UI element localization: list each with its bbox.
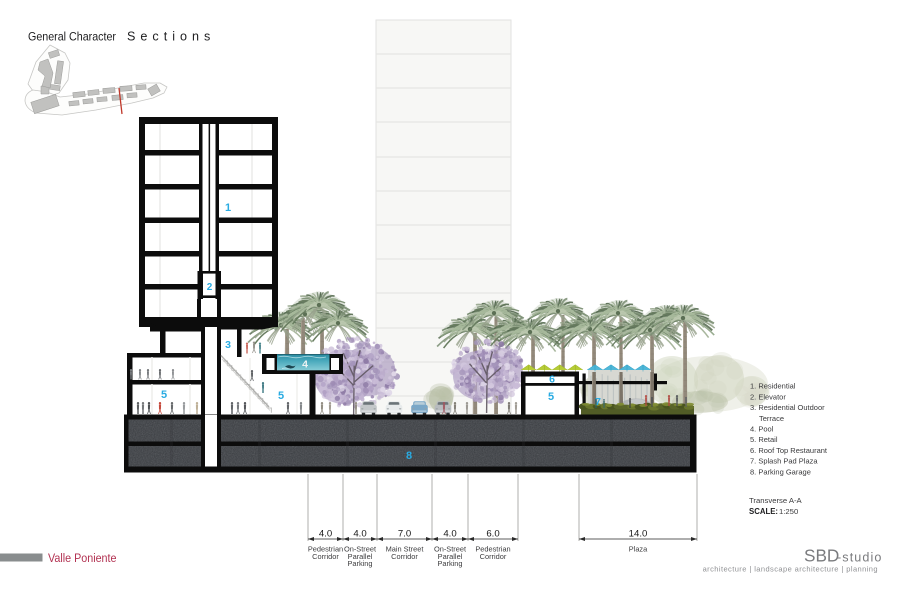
svg-text:General Character: General Character — [28, 30, 116, 44]
svg-text:Parking: Parking — [347, 559, 372, 568]
svg-text:4.0: 4.0 — [353, 529, 366, 540]
svg-text:4: 4 — [302, 359, 308, 371]
svg-text:5: 5 — [161, 389, 167, 401]
svg-text:4. Pool: 4. Pool — [750, 425, 774, 434]
svg-text:Corridor: Corridor — [312, 552, 339, 561]
svg-text:7. Splash Pad Plaza: 7. Splash Pad Plaza — [750, 457, 818, 466]
svg-text:6. Roof Top Restaurant: 6. Roof Top Restaurant — [750, 446, 828, 455]
svg-text:4.0: 4.0 — [319, 529, 332, 540]
svg-text:1. Residential: 1. Residential — [750, 382, 796, 391]
svg-text:3: 3 — [225, 339, 231, 351]
svg-text:Plaza: Plaza — [629, 545, 648, 554]
svg-text:Valle Poniente: Valle Poniente — [48, 551, 117, 565]
svg-text:6: 6 — [549, 374, 555, 386]
svg-text:Corridor: Corridor — [480, 552, 507, 561]
svg-text:Sections: Sections — [127, 30, 215, 44]
svg-text:Transverse A-A: Transverse A-A — [749, 496, 803, 505]
svg-text:4.0: 4.0 — [443, 529, 456, 540]
svg-text:5: 5 — [548, 391, 554, 403]
svg-text:SCALE:: SCALE: — [749, 507, 778, 516]
svg-text:8: 8 — [406, 450, 412, 462]
svg-text:3. Residential Outdoor: 3. Residential Outdoor — [750, 403, 825, 412]
svg-text:14.0: 14.0 — [629, 529, 648, 540]
svg-text:architecture | landscape archi: architecture | landscape architecture | … — [703, 565, 878, 574]
svg-text:7.0: 7.0 — [398, 529, 411, 540]
svg-text:SBD: SBD — [804, 546, 839, 566]
svg-text:7: 7 — [595, 396, 601, 408]
svg-text:8. Parking Garage: 8. Parking Garage — [750, 467, 811, 476]
svg-text:Parking: Parking — [437, 559, 462, 568]
svg-text:5: 5 — [278, 390, 284, 402]
svg-text:Terrace: Terrace — [759, 414, 784, 423]
svg-text:2: 2 — [207, 282, 213, 293]
svg-text:Corridor: Corridor — [391, 552, 418, 561]
svg-text:1: 1 — [225, 202, 231, 214]
svg-text:5. Retail: 5. Retail — [750, 435, 778, 444]
svg-text:1:250: 1:250 — [779, 507, 798, 516]
svg-text:2. Elevator: 2. Elevator — [750, 392, 786, 401]
svg-text:6.0: 6.0 — [486, 529, 499, 540]
svg-text:-studio: -studio — [837, 551, 883, 565]
